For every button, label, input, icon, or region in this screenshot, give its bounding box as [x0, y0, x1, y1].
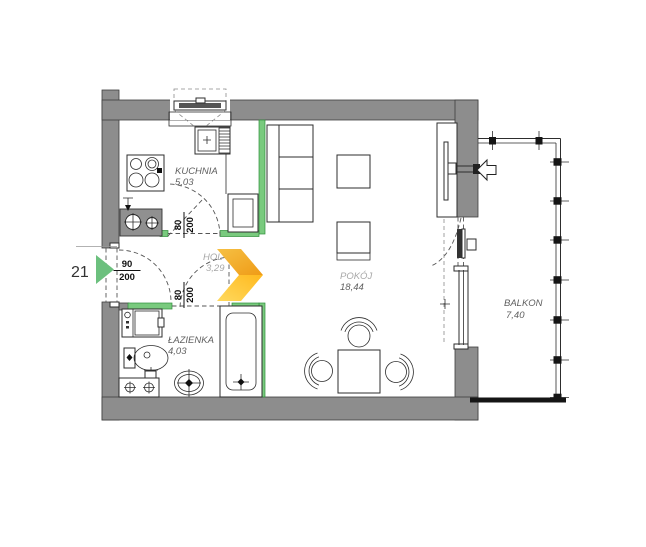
- unit-number: 21: [71, 264, 89, 281]
- plumbing-box-icon: [119, 371, 159, 397]
- kitchen-name: KUCHNIA: [175, 166, 218, 177]
- kitchen-cabinet: [226, 154, 258, 232]
- dining-table-icon: [338, 350, 380, 393]
- kitchen-sink-icon: [120, 198, 162, 236]
- entrance-door: [106, 243, 171, 307]
- balcony-name: BALKON: [504, 298, 543, 309]
- chair-left-icon: [305, 353, 333, 389]
- kitchen-area: 5,03: [175, 177, 194, 188]
- railing-posts-right: [550, 158, 569, 401]
- chair-top-icon: [341, 318, 377, 347]
- bathroom-label: ŁAZIENKA 4,03: [168, 335, 214, 357]
- hall-area: 3,29: [206, 263, 225, 274]
- side-table-icon: [337, 155, 370, 188]
- bathroom-door-width: 80: [173, 290, 184, 301]
- armchair-icon: [337, 222, 370, 260]
- room-name: POKÓJ: [340, 271, 372, 282]
- bathroom-name: ŁAZIENKA: [168, 335, 214, 346]
- entrance-marker-icon: [96, 255, 114, 284]
- bathroom-door-label: 80 200: [173, 282, 196, 308]
- entrance-door-width: 90: [122, 259, 133, 270]
- floor-plan-svg: 21 90 200 80 200 80 200 KUCHNIA 5,03 HOL…: [0, 0, 646, 547]
- tv-cabinet-icon: [437, 123, 457, 217]
- balcony-slab-edge: [470, 398, 566, 403]
- wardrobe-icon: [267, 125, 313, 222]
- toilet-icon: [175, 369, 204, 397]
- hall-name: HOL: [203, 252, 223, 263]
- fridge-icon: [195, 127, 230, 154]
- balcony-label: BALKON 7,40: [504, 298, 543, 321]
- entrance-door-height: 200: [119, 272, 135, 283]
- room-area: 18,44: [340, 282, 364, 293]
- room-label: POKÓJ 18,44: [340, 271, 372, 293]
- washing-machine-icon: [122, 309, 164, 337]
- kitchen-window: [169, 89, 231, 131]
- hall-label: HOL 3,29: [203, 252, 225, 274]
- bathtub-icon: [220, 306, 262, 397]
- bathroom-door-height: 200: [185, 287, 196, 303]
- brand-logo-icon: [217, 249, 263, 301]
- kitchen-label: KUCHNIA 5,03: [175, 166, 218, 188]
- entrance-door-label: 90 200: [114, 259, 141, 283]
- balcony-door: [431, 217, 476, 268]
- kitchen-door-height: 200: [185, 217, 196, 233]
- stove-icon: [127, 155, 164, 191]
- balcony-area: 7,40: [506, 310, 525, 321]
- chair-right-icon: [386, 354, 414, 390]
- bathroom-area: 4,03: [168, 346, 187, 357]
- kitchen-door-width: 80: [173, 220, 184, 231]
- floor-plan: 21 90 200 80 200 80 200 KUCHNIA 5,03 HOL…: [0, 0, 646, 547]
- kitchen-door-label: 80 200: [173, 212, 196, 238]
